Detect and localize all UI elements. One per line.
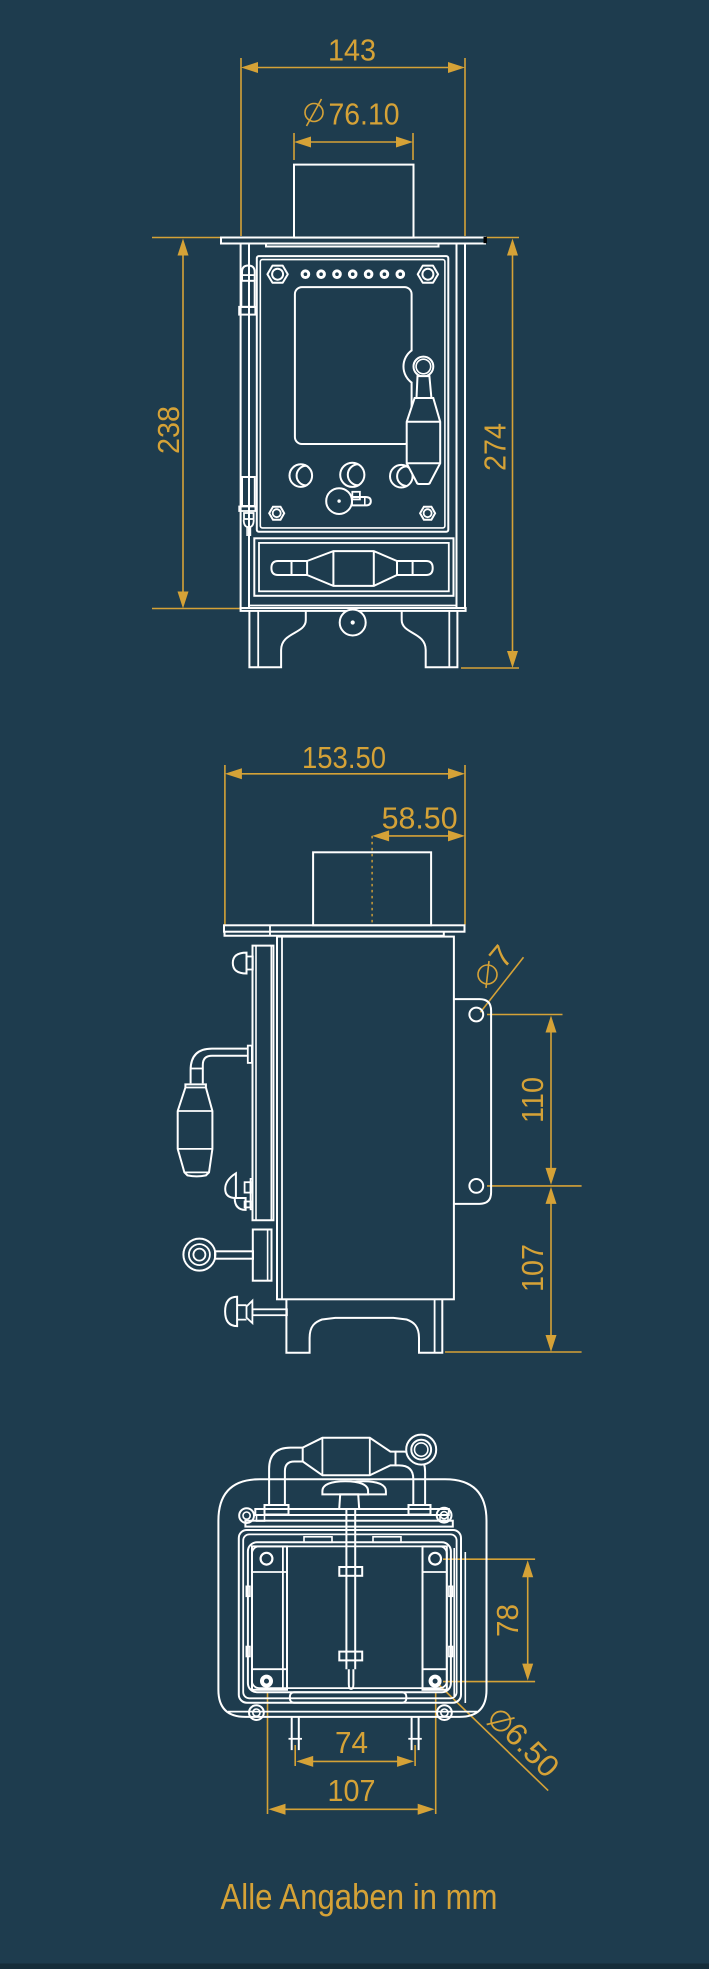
svg-text:274: 274 [478, 423, 513, 471]
svg-text:107: 107 [328, 1773, 376, 1808]
svg-text:74: 74 [335, 1725, 368, 1760]
svg-text:58.50: 58.50 [382, 801, 458, 836]
svg-text:76.10: 76.10 [329, 97, 400, 132]
svg-text:107: 107 [515, 1244, 550, 1292]
svg-text:Alle Angaben in mm: Alle Angaben in mm [221, 1876, 498, 1917]
svg-text:110: 110 [515, 1077, 550, 1123]
svg-text:78: 78 [490, 1604, 525, 1637]
svg-text:6.50: 6.50 [498, 1716, 567, 1785]
svg-text:238: 238 [151, 406, 186, 454]
svg-text:153.50: 153.50 [302, 740, 386, 775]
svg-text:143: 143 [328, 33, 376, 68]
